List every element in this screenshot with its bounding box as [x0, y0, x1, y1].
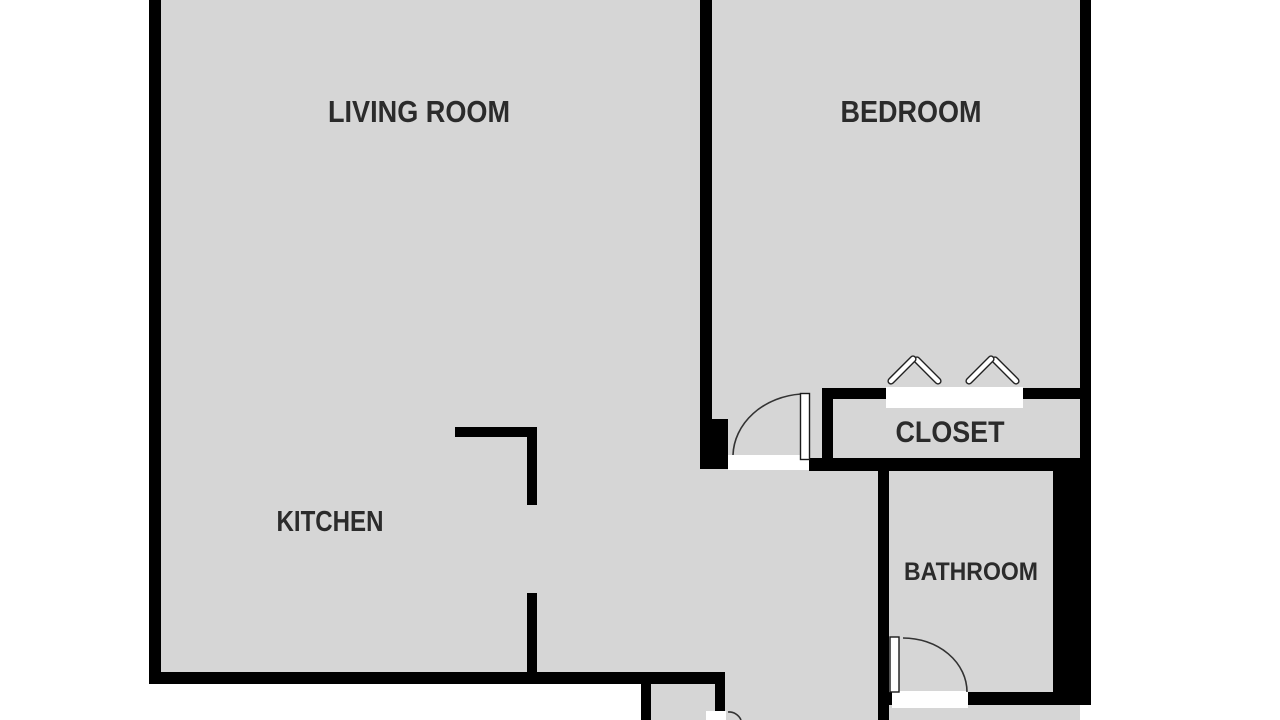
- svg-text:KITCHEN: KITCHEN: [277, 506, 384, 538]
- svg-text:BATHROOM: BATHROOM: [904, 558, 1038, 586]
- svg-text:BEDROOM: BEDROOM: [841, 94, 982, 129]
- svg-text:LIVING ROOM: LIVING ROOM: [328, 94, 510, 129]
- svg-text:CLOSET: CLOSET: [896, 416, 1005, 449]
